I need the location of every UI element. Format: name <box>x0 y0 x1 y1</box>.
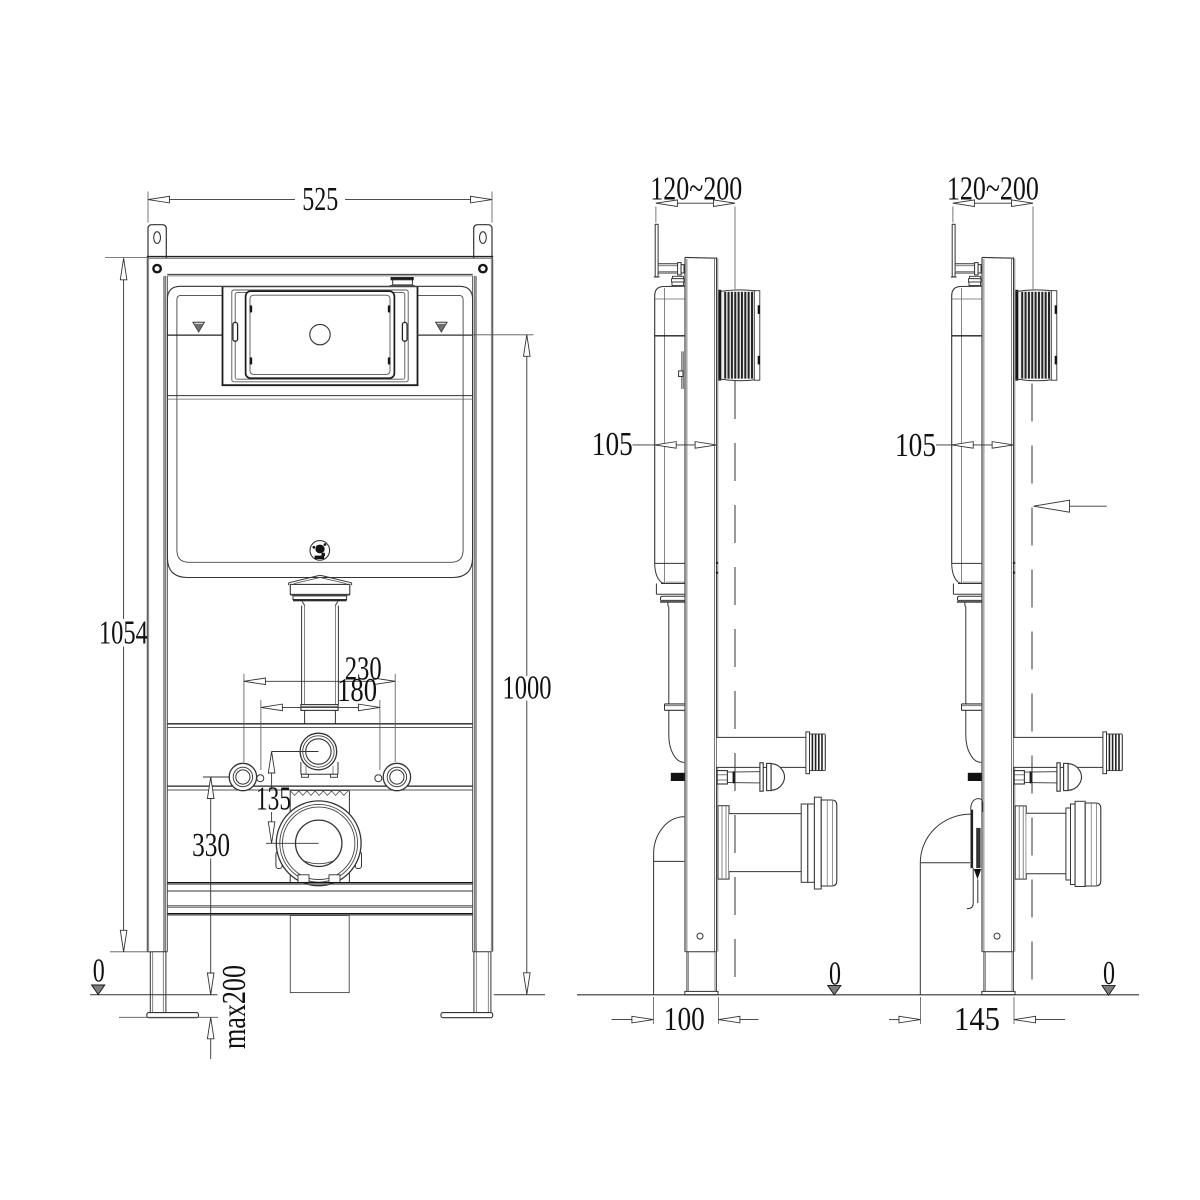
svg-text:180: 180 <box>337 672 377 709</box>
svg-text:525: 525 <box>302 181 338 218</box>
svg-text:105: 105 <box>592 426 633 463</box>
svg-text:100: 100 <box>664 1001 705 1038</box>
svg-text:135: 135 <box>256 780 291 817</box>
svg-text:0: 0 <box>93 953 105 990</box>
svg-text:max200: max200 <box>216 965 253 1049</box>
svg-text:0: 0 <box>829 956 841 993</box>
svg-text:120~200: 120~200 <box>650 171 742 208</box>
svg-text:1000: 1000 <box>503 670 552 707</box>
svg-text:145: 145 <box>954 1001 1000 1038</box>
svg-text:330: 330 <box>192 827 230 864</box>
svg-text:1054: 1054 <box>99 615 148 652</box>
svg-text:0: 0 <box>1103 955 1115 992</box>
svg-text:120~200: 120~200 <box>947 171 1039 208</box>
svg-text:105: 105 <box>895 427 936 464</box>
